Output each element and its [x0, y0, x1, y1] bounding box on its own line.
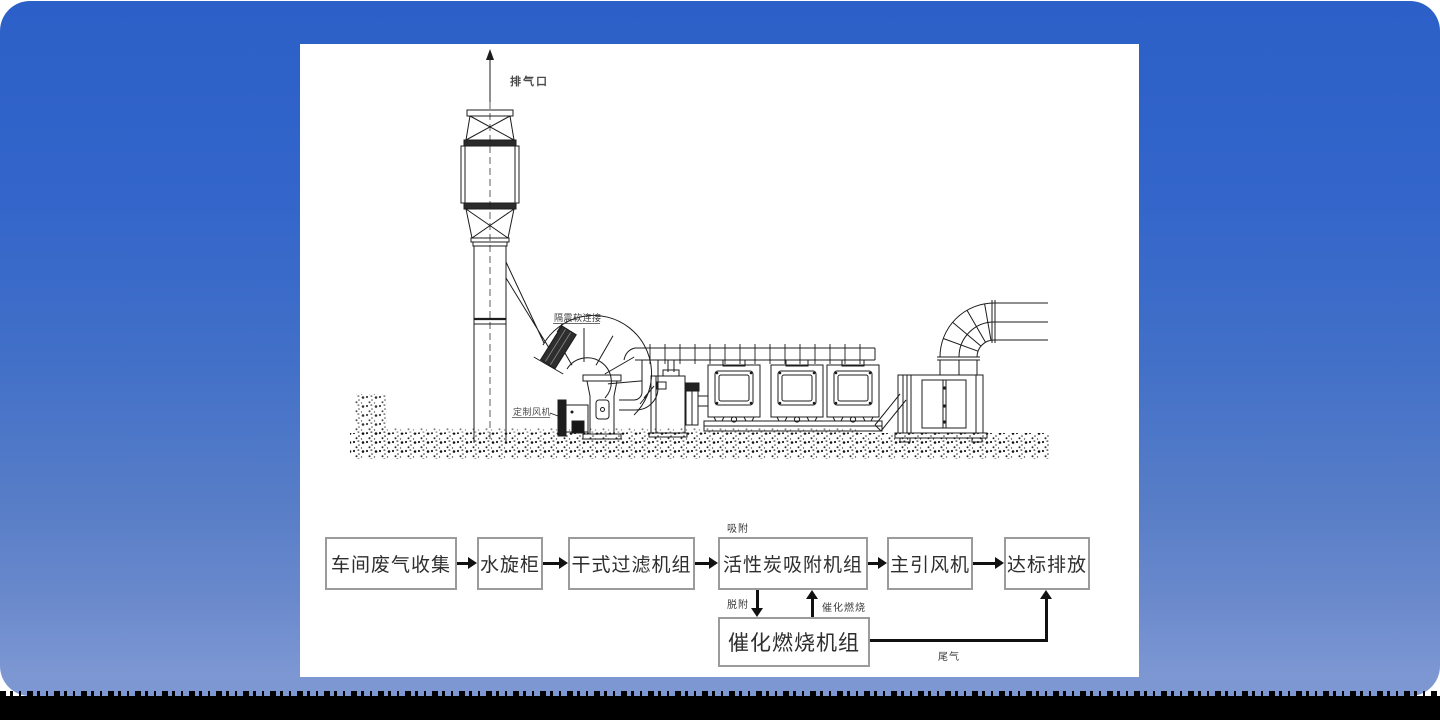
adsorption-modules: [704, 360, 882, 431]
flow-box-main-fan: 主引风机: [887, 537, 973, 590]
flow-arrow-2-icon: [543, 562, 559, 565]
flow-arrow-5-icon: [973, 562, 995, 565]
flow-arrow-4-icon: [868, 562, 878, 565]
flow-arrow-3-icon: [695, 562, 709, 565]
fan-label: 定制风机: [512, 406, 551, 418]
flow-box-catalytic: 催化燃烧机组: [718, 617, 870, 667]
equipment-drawing: 隔震软连接 定制风机: [300, 44, 1139, 524]
catalytic-unit-drawing: [895, 375, 987, 442]
flex-joint: [541, 324, 577, 369]
label-adsorb: 吸附: [727, 520, 749, 535]
label-desorb: 脱附: [727, 596, 749, 611]
flow-arrow-1-icon: [457, 562, 468, 565]
flex-joint-label-text: 隔震软连接: [554, 312, 602, 323]
flow-box-collection: 车间废气收集: [325, 537, 457, 590]
ground-texture: [350, 394, 1050, 459]
exhaust-stack: [461, 49, 519, 443]
tail-gas-arrow-icon: [1045, 598, 1048, 642]
overhead-duct: [624, 344, 875, 364]
content-panel: 隔震软连接 定制风机: [300, 44, 1139, 677]
tail-gas-line-h: [870, 639, 1048, 642]
connector-duct: [619, 360, 658, 410]
transfer-chute: [875, 394, 906, 431]
label-tail-gas: 尾气: [938, 648, 960, 663]
exhaust-outlet-label: 排气口: [510, 74, 549, 88]
desorb-arrow-icon: [756, 590, 759, 609]
exhaust-outlet-label-text: 排气口: [510, 74, 549, 88]
slant-duct: [506, 262, 554, 356]
flow-box-discharge: 达标排放: [1004, 537, 1090, 590]
catalytic-return-arrow-icon: [811, 598, 814, 617]
flow-box-dry-filter: 干式过滤机组: [568, 537, 695, 590]
flow-box-water-spin: 水旋柜: [477, 537, 543, 590]
flex-joint-label: 隔震软连接: [553, 312, 602, 324]
outlet-duct: [937, 300, 1048, 375]
slide: 隔震软连接 定制风机: [0, 0, 1440, 720]
fan-label-text: 定制风机: [513, 406, 551, 417]
bottom-black-band: [0, 696, 1440, 720]
label-catalytic-combustion: 催化燃烧: [822, 599, 866, 614]
flow-box-carbon: 活性炭吸附机组: [718, 537, 868, 590]
